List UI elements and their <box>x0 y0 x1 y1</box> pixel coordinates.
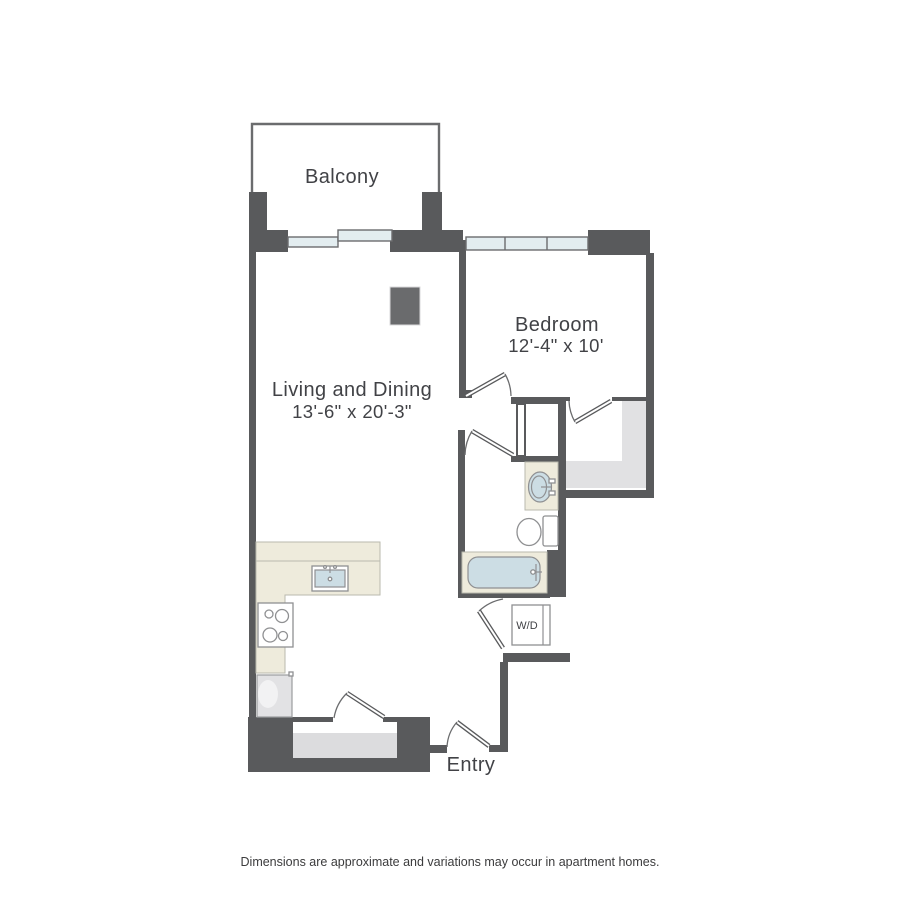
balcony-label: Balcony <box>305 166 379 188</box>
entry-door-arc <box>447 722 457 747</box>
kitchen-sink-drain-icon <box>328 577 332 581</box>
laundry-door <box>479 611 503 648</box>
refrigerator-highlight <box>258 680 278 708</box>
wall-hall-right <box>500 662 508 752</box>
floor-plan-svg: Balcony Living and Dining 13'-6" x 20'-3… <box>0 0 900 900</box>
washer-dryer-label: W/D <box>516 620 537 632</box>
stove-burner-icon <box>276 610 289 623</box>
bathroom <box>462 462 558 593</box>
stove-burner-icon <box>279 632 288 641</box>
entry-closet-door <box>347 693 384 717</box>
disclaimer-text: Dimensions are approximate and variation… <box>241 855 660 869</box>
entry-closet-floor <box>293 733 397 758</box>
wall-bottom-band <box>293 758 430 772</box>
wall-exterior-left <box>249 252 256 772</box>
bathroom-door <box>472 431 513 455</box>
entry-label: Entry <box>447 754 496 776</box>
living-room-label: Living and Dining <box>272 379 432 401</box>
wall-balcony-pillar-center <box>422 192 442 232</box>
bedroom-window <box>466 237 588 250</box>
column <box>390 287 420 325</box>
living-window <box>288 237 338 247</box>
kitchen-faucet-handle-icon <box>334 566 337 569</box>
tub-faucet-knob-icon <box>531 570 535 574</box>
wall-balcony-pillar-center-foot <box>390 230 463 252</box>
laundry-door-arc <box>479 599 503 611</box>
toilet-bowl <box>517 519 541 546</box>
wall-wd-bottom <box>503 653 570 662</box>
kitchen <box>256 542 380 717</box>
bedroom-dimensions: 12'-4" x 10' <box>508 335 604 356</box>
floor-plan-page: Balcony Living and Dining 13'-6" x 20'-3… <box>0 0 900 900</box>
wall-entry-stub-left <box>430 745 447 753</box>
kitchen-faucet-handle-icon <box>324 566 327 569</box>
wall-closet-bottom <box>558 490 654 498</box>
wall-balcony-pillar-left <box>249 192 267 233</box>
wall-corner-top-right <box>588 230 650 255</box>
wall-entry-stub-right <box>489 745 508 752</box>
bathroom-door-arc <box>465 431 472 455</box>
bathtub <box>468 557 540 588</box>
bedroom-door-arc <box>505 374 511 396</box>
stove-burner-icon <box>263 628 277 642</box>
wall-exterior-right-bedroom <box>646 253 654 498</box>
bedroom-door <box>466 374 505 396</box>
wall-entry-closet-top-left <box>293 717 333 722</box>
toilet-tank <box>543 516 558 546</box>
wall-double-line <box>517 404 525 456</box>
living-room-dimensions: 13'-6" x 20'-3" <box>292 401 412 422</box>
stove <box>258 603 293 647</box>
wall-entry-closet-top-right <box>383 717 397 722</box>
bedroom-closet <box>566 401 646 488</box>
refrigerator-handle-icon <box>289 672 293 676</box>
bathroom-faucet-handle-icon <box>549 491 555 495</box>
balcony-door-window <box>338 230 392 241</box>
wall-tub-right <box>547 550 566 597</box>
bathroom-faucet-handle-icon <box>549 479 555 483</box>
wall-corner-bottom-left <box>248 717 293 772</box>
wall-balcony-pillar-left-foot <box>249 230 288 252</box>
wall-living-bedroom <box>459 240 466 393</box>
wall-hall-top <box>511 397 570 404</box>
bedroom-label: Bedroom <box>515 314 599 336</box>
entry-door <box>457 722 489 746</box>
entry-closet-door-arc <box>334 693 347 718</box>
stove-burner-icon <box>265 610 273 618</box>
